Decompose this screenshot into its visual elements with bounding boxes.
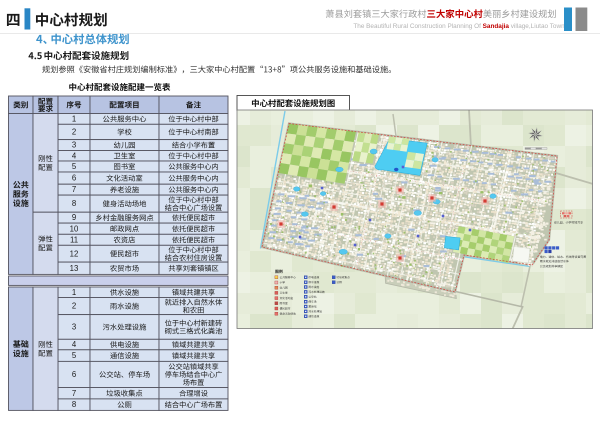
svg-text:11: 11 (70, 235, 78, 244)
svg-text:5: 5 (72, 162, 77, 171)
svg-text:3: 3 (72, 323, 76, 332)
svg-text:6: 6 (72, 370, 76, 379)
svg-text:12: 12 (70, 249, 79, 258)
svg-text:7: 7 (72, 389, 76, 398)
svg-text:1: 1 (72, 288, 76, 297)
svg-text:10: 10 (70, 224, 79, 233)
svg-text:5: 5 (72, 351, 77, 360)
svg-text:2: 2 (72, 128, 76, 137)
svg-text:8: 8 (72, 199, 76, 208)
svg-text:6: 6 (72, 174, 76, 183)
svg-text:4: 4 (72, 151, 77, 160)
svg-text:9: 9 (72, 213, 76, 222)
svg-text:13: 13 (70, 264, 79, 273)
svg-text:2: 2 (72, 302, 76, 311)
svg-text:1: 1 (72, 115, 76, 124)
svg-text:4: 4 (72, 340, 77, 349)
svg-text:7: 7 (72, 185, 76, 194)
svg-text:The Beautiful Rural Constructi: The Beautiful Rural Construction Plannin… (353, 23, 565, 30)
svg-text:8: 8 (72, 400, 76, 409)
svg-text:3: 3 (72, 141, 76, 150)
